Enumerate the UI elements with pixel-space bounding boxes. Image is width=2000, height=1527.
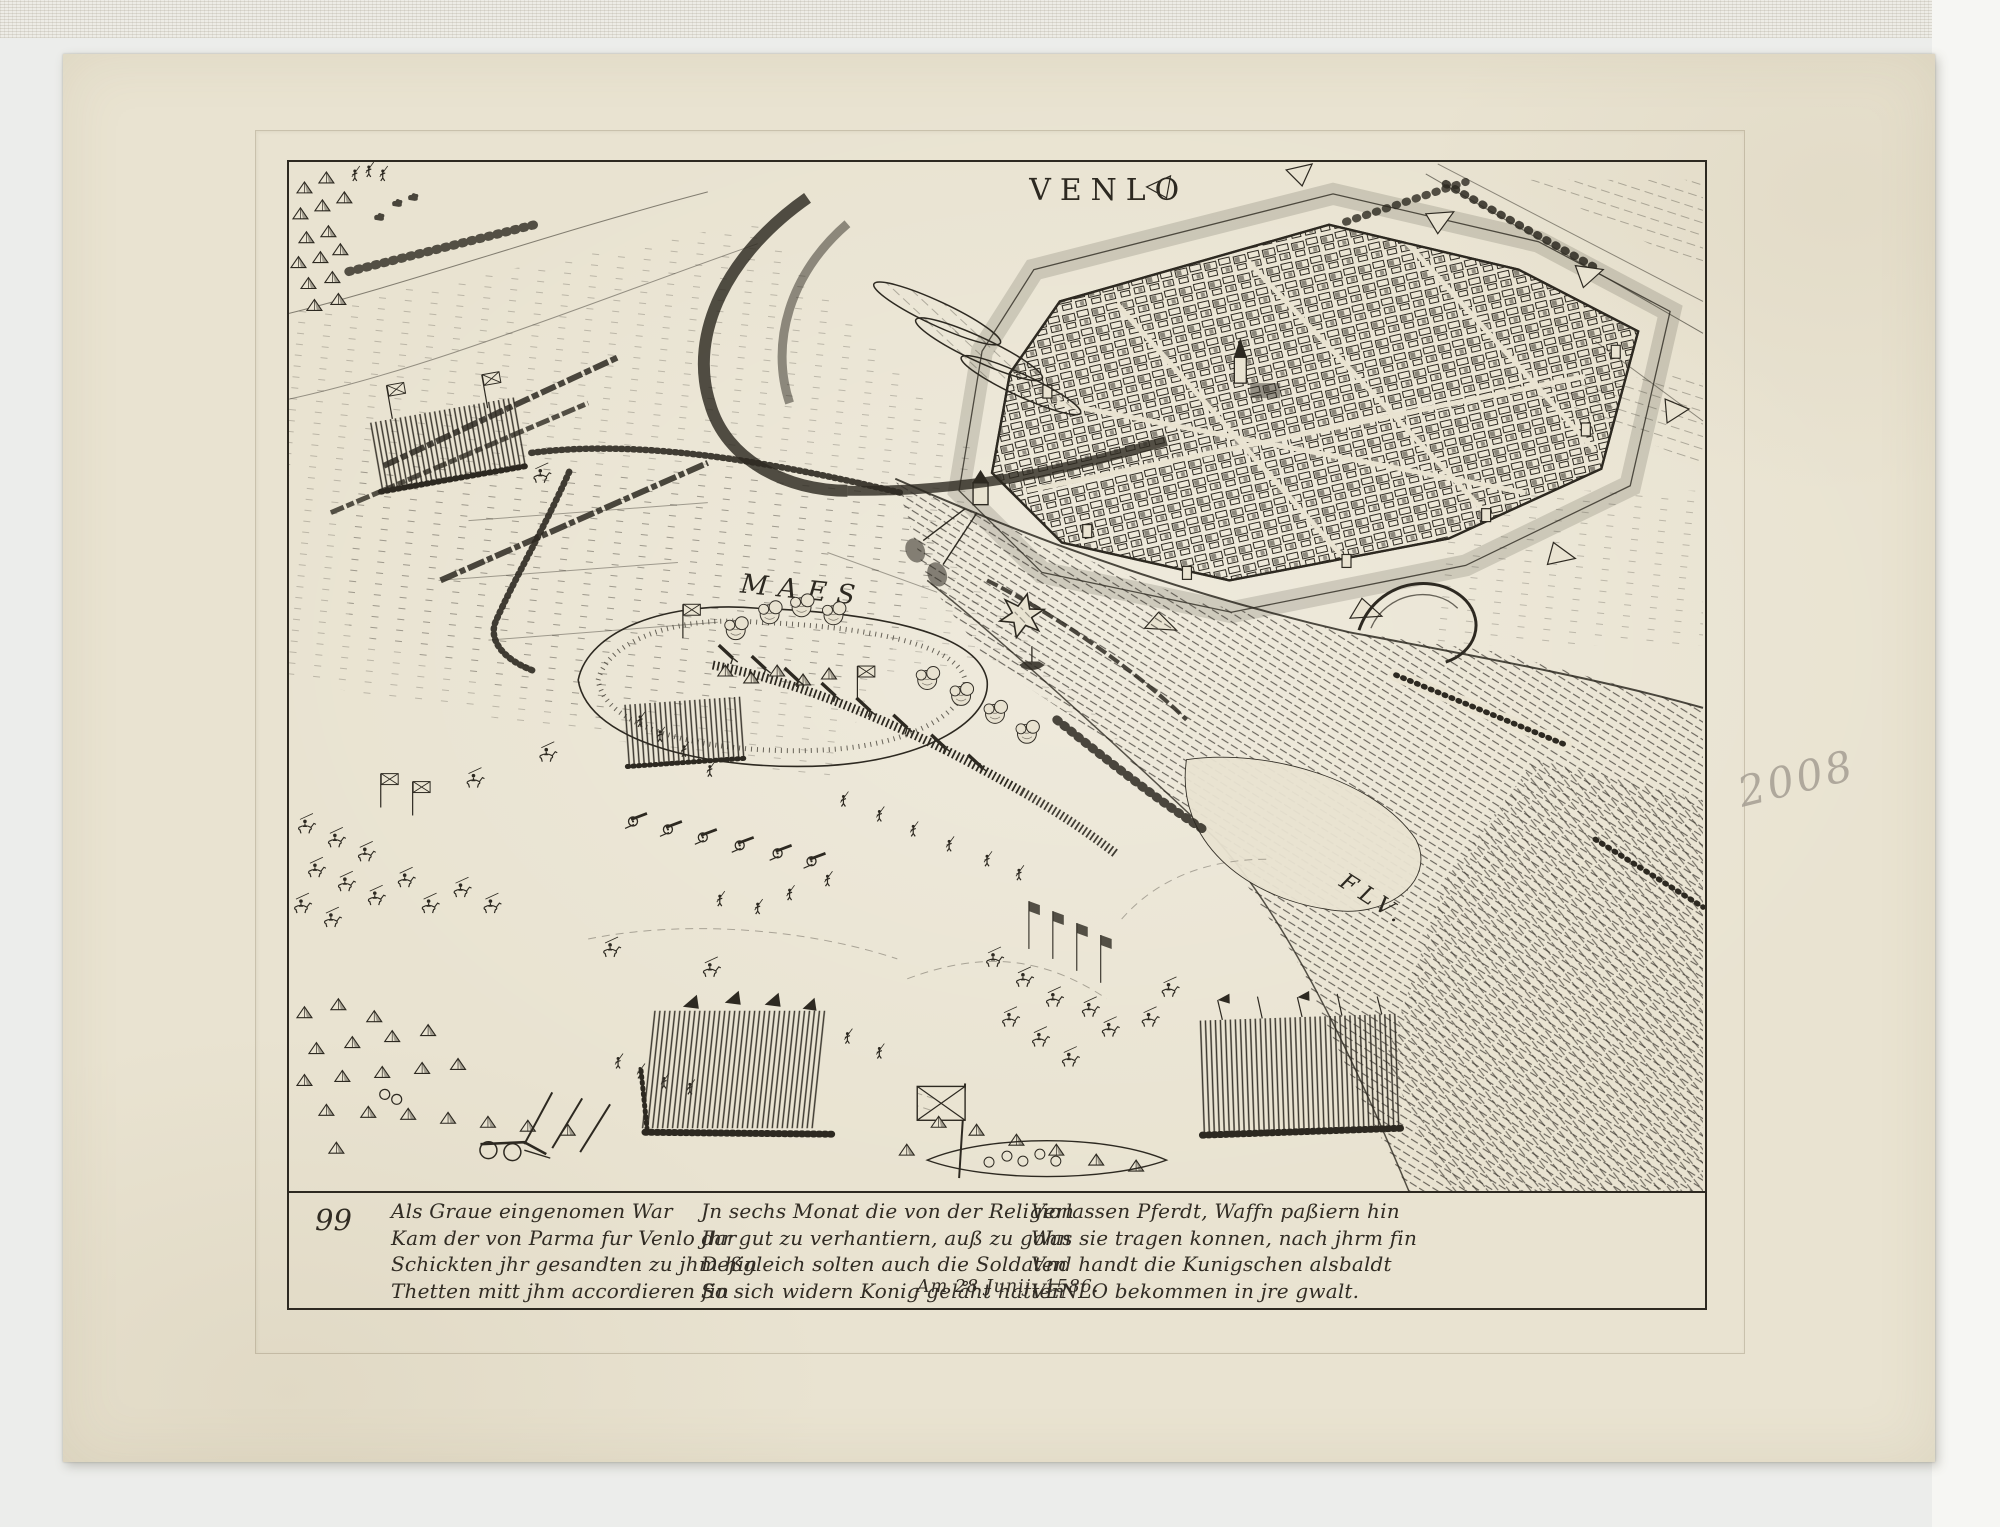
verse-line: Was sie tragen konnen, nach jhrm fin [1031,1225,1417,1252]
caption-date: Am 28 Junij. 1586. [917,1277,1099,1297]
verse-line: Verlassen Pferdt, Waffn paßiern hin [1031,1198,1417,1225]
rider [1142,1007,1159,1027]
fabric-texture-strip [0,0,2000,38]
paper-sheet: FLV. MAES [63,54,1935,1462]
leaning-pikes [524,1092,610,1152]
pike-square-center [641,991,835,1134]
verse-line: Vnd handt die Kunigschen alsbaldt [1031,1251,1417,1278]
spare-cannons-row [625,813,825,868]
verse-line: Jn sechs Monat die von der Religion [701,1198,1074,1225]
title-venlo: VENLO [1028,173,1188,208]
camp-bottom-left [297,999,610,1161]
tracks [588,859,1266,998]
mat-strip [1932,0,2000,1527]
engraving-scene: FLV. MAES [289,162,1705,1191]
barrels [380,1089,402,1104]
plate-number: 99 [315,1203,352,1237]
scan-background: FLV. MAES [0,0,2000,1527]
caption-band: 99 Als Graue eingenomen War Kam der von … [289,1191,1705,1308]
verse-line: Deßgleich solten auch die Soldaten [701,1251,1074,1278]
cavalry-with-banners [987,901,1120,1066]
gun-carriage [480,1142,550,1161]
rider [1162,977,1179,997]
cavalry-left [295,742,721,977]
verse-line: Jhr gut zu verhantiern, auß zu gohn [701,1225,1074,1252]
camp-top-left [291,162,418,310]
pencil-inscription: 2008 [1733,740,1860,816]
engraving: FLV. MAES [287,160,1707,1310]
